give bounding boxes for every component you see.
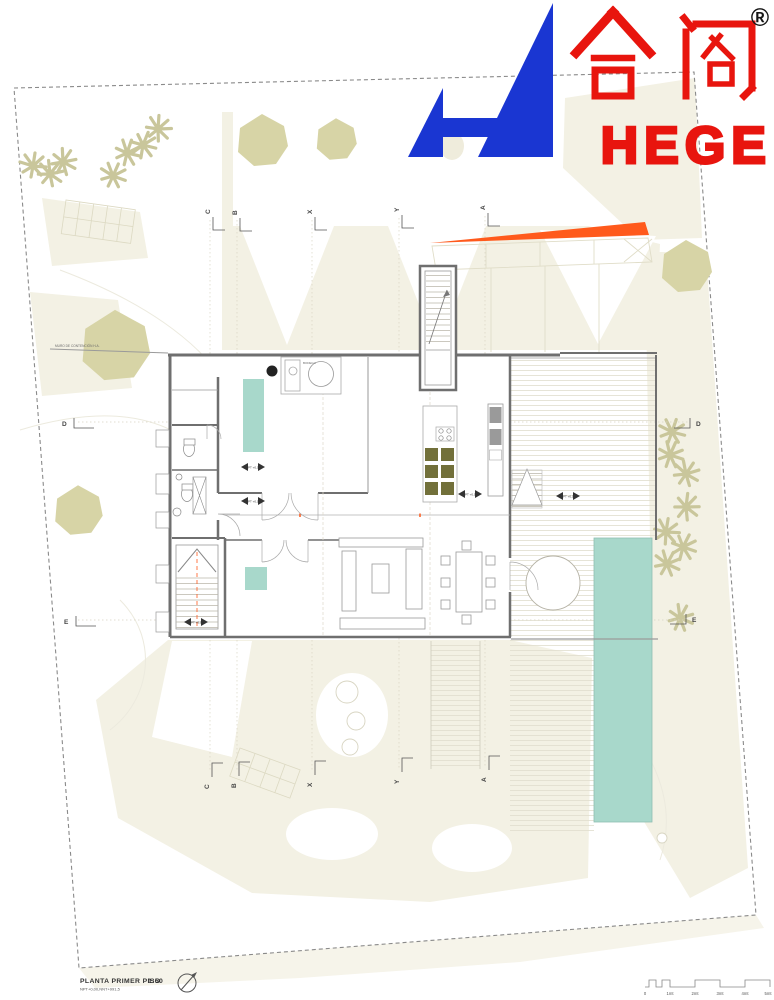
ramp: [176, 545, 218, 629]
svg-text:NPT +0,00: NPT +0,00: [246, 499, 261, 503]
retaining-wall-label: MURO DE CONTENCIÓN H.A.: [55, 343, 100, 348]
svg-text:B: B: [232, 210, 239, 215]
tree-canopy: [55, 485, 103, 534]
tall-cabinet: [488, 404, 503, 496]
tree-canopy: [317, 118, 357, 160]
planter-circle: [526, 556, 580, 610]
svg-text:3mt: 3mt: [717, 991, 725, 996]
svg-text:Y: Y: [394, 207, 401, 212]
svg-text:X: X: [307, 209, 314, 214]
svg-text:A: A: [481, 777, 488, 782]
column-dot: [267, 366, 278, 377]
scale-bar: 0 1mt 2mt 3mt 4mt 5mt: [644, 980, 772, 996]
svg-text:B: B: [231, 783, 238, 788]
svg-text:C: C: [205, 209, 212, 214]
svg-text:NPT +0,00: NPT +0,00: [463, 492, 478, 496]
grid-marker-left-e: E: [64, 616, 96, 626]
svg-text:NPT +0,00: NPT +0,00: [189, 620, 204, 624]
sheet-levels-note: NPT+0,00,NNT+991,5: [80, 987, 121, 992]
svg-text:4mt: 4mt: [742, 991, 750, 996]
svg-text:1mt: 1mt: [667, 991, 675, 996]
storage-label: BODEGA: [303, 361, 316, 365]
svg-text:C: C: [204, 784, 211, 789]
logo-latin: HEGE: [601, 117, 772, 175]
kitchen: [423, 406, 457, 502]
logo-mark: [408, 3, 553, 157]
svg-text:Y: Y: [394, 779, 401, 784]
svg-text:0: 0: [644, 991, 647, 996]
tree-canopy: [238, 114, 288, 166]
sheet-scale: 1:50: [148, 978, 163, 985]
pool: [594, 538, 652, 822]
svg-text:NPT +0,00: NPT +0,00: [246, 465, 261, 469]
left-windows: [156, 430, 169, 632]
svg-text:2mt: 2mt: [692, 991, 700, 996]
svg-text:NPT +0,00: NPT +0,00: [561, 494, 576, 498]
registered-mark: ®: [751, 4, 770, 32]
svg-text:X: X: [307, 782, 314, 787]
svg-text:D: D: [696, 421, 701, 428]
grid-marker-top-a: A: [480, 205, 500, 226]
site-plan-drawing: MURO DE CONTENCIÓN H.A.: [0, 0, 774, 1000]
svg-text:A: A: [480, 205, 487, 210]
grid-marker-top-y: Y: [394, 207, 414, 228]
drawing-sheet: MURO DE CONTENCIÓN H.A.: [0, 0, 774, 1000]
svg-text:E: E: [692, 617, 697, 624]
svg-text:D: D: [62, 421, 67, 428]
coffee-table: [372, 564, 389, 593]
svg-text:E: E: [64, 619, 69, 626]
stair-tower: [420, 266, 456, 390]
svg-text:5mt: 5mt: [765, 991, 773, 996]
